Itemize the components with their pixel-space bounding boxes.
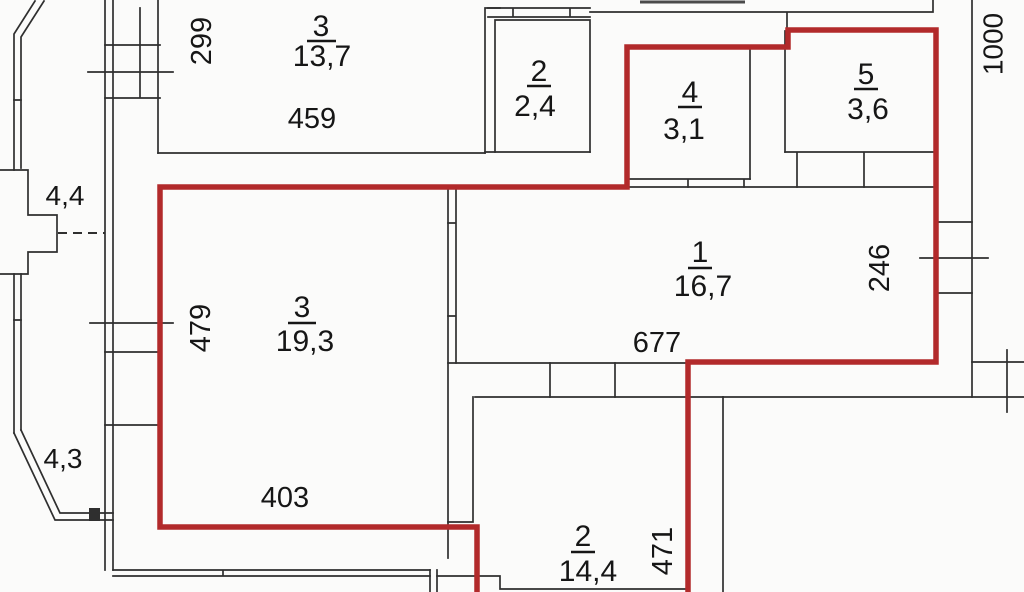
dim-471: 471 bbox=[647, 527, 679, 575]
bay-diagonal-top-outer bbox=[14, 1, 35, 170]
left-wall-window-ticks-top bbox=[88, 8, 173, 98]
dim-4-4: 4,4 bbox=[46, 180, 85, 211]
bottom-band-double bbox=[113, 570, 430, 576]
room-2-4-number: 2 bbox=[531, 55, 548, 88]
dim-246: 246 bbox=[864, 244, 896, 292]
dim-403: 403 bbox=[261, 482, 309, 514]
room-3-1-number: 4 bbox=[682, 76, 699, 109]
room-3-6-bottom-wall bbox=[785, 152, 934, 187]
wardrobe-band bbox=[448, 363, 723, 522]
bottom-band-verticals bbox=[430, 570, 437, 592]
bay-wall-ties bbox=[14, 100, 21, 320]
room-19-3-area: 19,3 bbox=[276, 325, 334, 358]
room-13-7-area: 13,7 bbox=[293, 40, 351, 73]
room-16-7-number: 1 bbox=[692, 236, 709, 269]
dim-479: 479 bbox=[185, 304, 217, 352]
room-14-4-area: 14,4 bbox=[559, 555, 617, 588]
floor-plan: 3 13,7 459 299 2 2,4 4 3,1 5 3,6 1000 1 … bbox=[0, 0, 1024, 592]
room-3-6-number: 5 bbox=[858, 58, 875, 91]
room-3-1-area: 3,1 bbox=[663, 113, 705, 146]
room-14-4-number: 2 bbox=[575, 520, 592, 553]
dim-677: 677 bbox=[633, 327, 681, 359]
room-19-3-number: 3 bbox=[294, 291, 311, 324]
dim-299: 299 bbox=[186, 17, 218, 65]
room-3-6-area: 3,6 bbox=[847, 93, 889, 126]
labels: 3 13,7 459 299 2 2,4 4 3,1 5 3,6 1000 1 … bbox=[44, 10, 1009, 588]
bay-diagonal-top-inner bbox=[21, 1, 44, 168]
floor-plan-drawing: 3 13,7 459 299 2 2,4 4 3,1 5 3,6 1000 1 … bbox=[0, 0, 1024, 592]
top-wall bbox=[488, 0, 933, 30]
room-13-7-right-wall bbox=[485, 8, 500, 153]
top-wall-double bbox=[488, 8, 590, 17]
room-13-7-number: 3 bbox=[313, 10, 330, 43]
kitchen-left-wall bbox=[448, 397, 473, 522]
dim-459: 459 bbox=[288, 103, 336, 135]
dim-1000: 1000 bbox=[978, 13, 1009, 75]
wardrobe-dividers bbox=[550, 363, 615, 397]
room-16-7-area: 16,7 bbox=[674, 270, 732, 303]
top-wall-single bbox=[590, 0, 933, 30]
interior-wall-living-hall bbox=[448, 187, 456, 558]
interior-wall-line-b bbox=[448, 187, 456, 363]
dim-4-3: 4,3 bbox=[44, 443, 83, 474]
room-3-1-bottom-wall bbox=[627, 179, 750, 187]
bay-end-post bbox=[89, 508, 100, 521]
room-2-4-area: 2,4 bbox=[514, 90, 556, 123]
